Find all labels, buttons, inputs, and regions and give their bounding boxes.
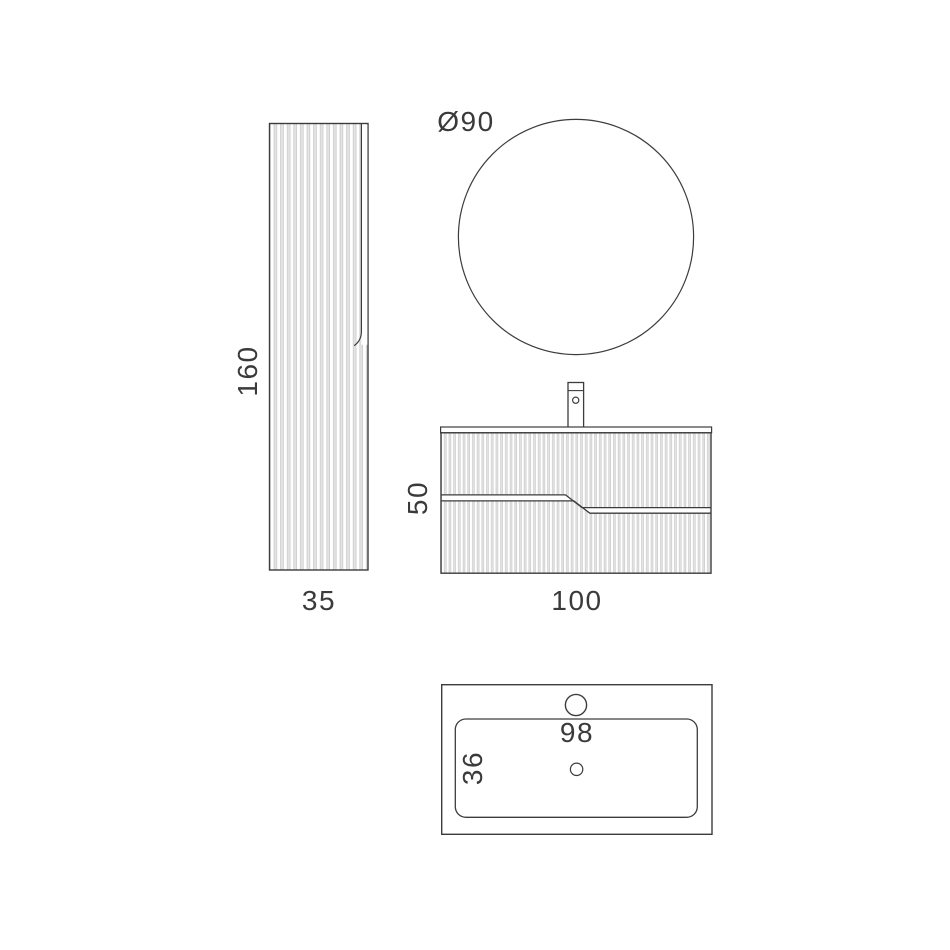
dimension-basin-width: 98	[560, 719, 594, 747]
round-mirror	[458, 119, 693, 354]
vanity-countertop	[441, 427, 712, 433]
dimension-cabinet-width: 35	[302, 587, 336, 615]
dimension-mirror-diameter: Ø90	[437, 108, 494, 136]
dimension-cabinet-height: 160	[234, 345, 262, 396]
drain-hole-icon	[570, 763, 582, 775]
dimension-drawing	[0, 0, 950, 950]
vanity-unit-front-view	[441, 383, 712, 574]
faucet-hole-icon	[565, 694, 586, 715]
cabinet-door-edge-strip	[361, 124, 367, 344]
dimension-basin-depth: 36	[459, 751, 487, 785]
faucet-icon	[568, 383, 584, 428]
technical-drawing-canvas: 160 35 Ø90 50 100 98 36	[0, 0, 950, 950]
dimension-vanity-width: 100	[551, 587, 602, 615]
tall-cabinet-front-view	[270, 124, 369, 571]
dimension-vanity-height: 50	[404, 481, 432, 515]
cabinet-body	[270, 124, 369, 571]
